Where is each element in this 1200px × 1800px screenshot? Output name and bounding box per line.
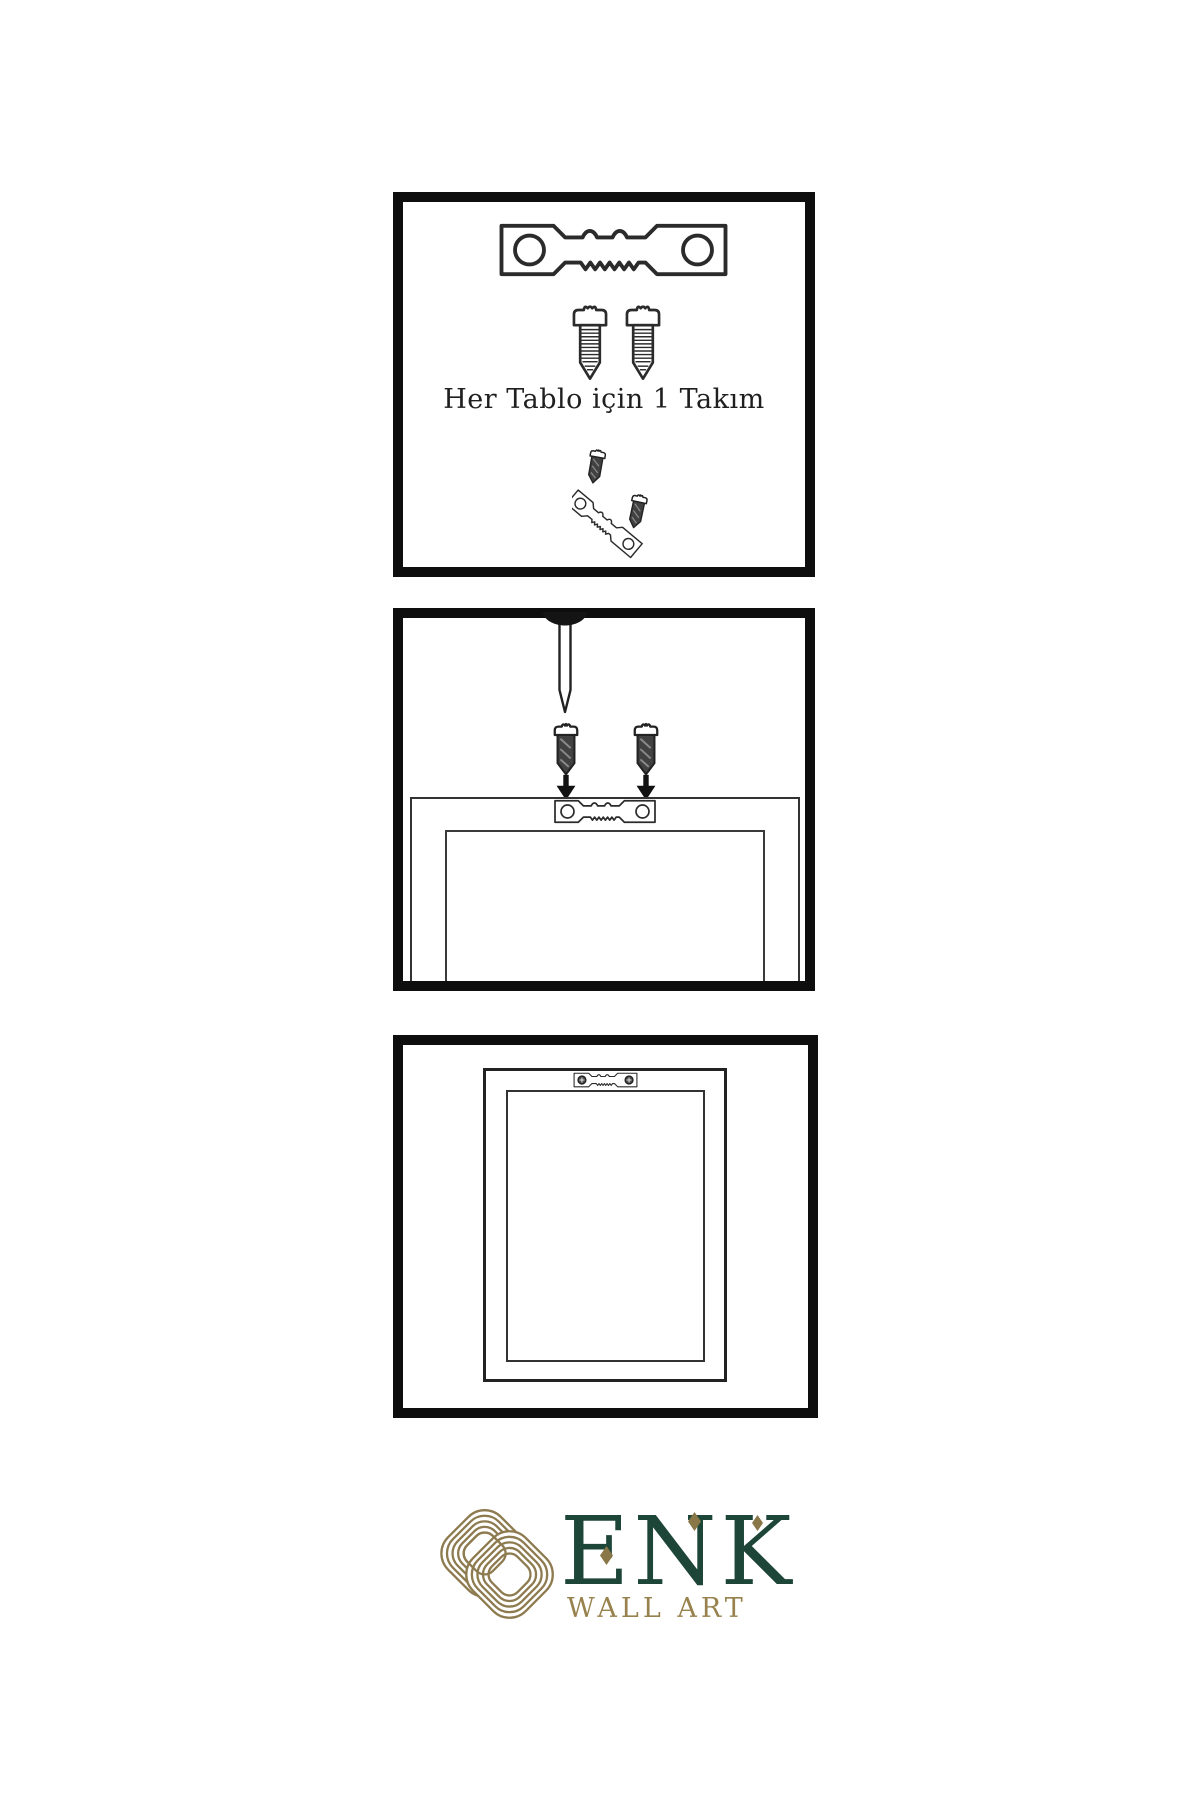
screw-into-hanger-icon bbox=[572, 448, 656, 560]
step-panel-hung-frame bbox=[393, 1035, 818, 1418]
instruction-poster: Her Tablo için 1 Takım bbox=[0, 0, 1200, 1800]
nail-icon bbox=[541, 610, 589, 718]
knot-logo-icon bbox=[433, 1492, 565, 1634]
screw-icon bbox=[623, 302, 663, 384]
frame-front-inner-outline bbox=[506, 1090, 705, 1362]
sawtooth-hanger-icon bbox=[553, 799, 657, 824]
sawtooth-hanger-icon bbox=[497, 222, 730, 278]
brand-name: ENK bbox=[560, 1498, 795, 1607]
step-panel-hardware-kit: Her Tablo için 1 Takım bbox=[393, 192, 815, 577]
dark-screw-icon bbox=[551, 720, 581, 780]
frame-back-inner-outline bbox=[445, 830, 765, 981]
step1-caption: Her Tablo için 1 Takım bbox=[403, 384, 805, 415]
step-panel-wall-mounting bbox=[393, 608, 815, 991]
dark-screw-icon bbox=[631, 720, 661, 780]
mounted-hanger-icon bbox=[573, 1072, 638, 1088]
brand-subtitle: WALL ART bbox=[567, 1593, 747, 1624]
screw-icon bbox=[570, 302, 610, 384]
